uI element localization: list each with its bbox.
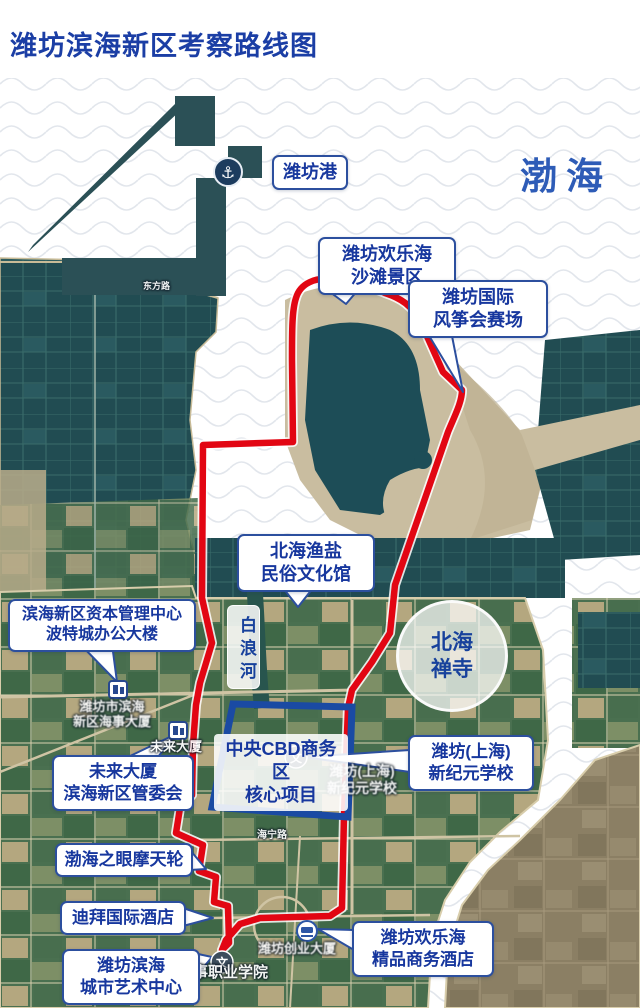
- callout-text: 未来大厦: [60, 761, 186, 783]
- callout-kite: 潍坊国际 风筝会赛场: [408, 280, 548, 338]
- svg-text:⚓: ⚓: [221, 165, 235, 182]
- callout-fishery: 北海渔盐 民俗文化馆: [237, 534, 375, 592]
- anchor-icon: ⚓: [214, 158, 242, 186]
- callout-text: 潍坊滨海: [70, 955, 192, 977]
- callout-cbd: 中央CBD商务区 核心项目: [214, 734, 348, 811]
- callout-text: 波特城办公大楼: [16, 625, 188, 645]
- callout-text: 北海渔盐: [245, 540, 367, 563]
- callout-text: 民俗文化馆: [245, 563, 367, 586]
- map-building-label: 潍坊市滨海 新区海事大厦: [58, 699, 166, 730]
- callout-text: 新纪元学校: [416, 763, 526, 785]
- callout-text: 潍坊国际: [416, 286, 540, 309]
- sea-name-label: 渤海: [520, 146, 612, 200]
- callout-text: 滨海新区管委会: [60, 783, 186, 805]
- callout-capital: 滨海新区资本管理中心 波特城办公大楼: [8, 599, 196, 652]
- callout-text: 潍坊欢乐海: [360, 927, 486, 949]
- building-icon: [169, 722, 187, 739]
- map-road-label: 东方路: [143, 281, 170, 292]
- callout-text: 禅寺: [399, 656, 505, 683]
- callout-text: 潍坊(上海): [416, 741, 526, 763]
- map-building-label: 潍坊创业大厦: [258, 941, 336, 956]
- callout-text: 潍坊欢乐海: [326, 243, 448, 266]
- route-map-page: ⚓ 文 文: [0, 0, 640, 1008]
- temple-circle-label: 北海 禅寺: [396, 600, 508, 712]
- callout-text: 风筝会赛场: [416, 309, 540, 332]
- callout-text: 核心项目: [220, 784, 342, 807]
- map-label-line: 新区海事大厦: [58, 714, 166, 729]
- callout-text: 城市艺术中心: [70, 977, 192, 999]
- callout-dubai: 迪拜国际酒店: [60, 901, 186, 935]
- callout-future: 未来大厦 滨海新区管委会: [52, 755, 194, 811]
- hotel-icon: [297, 921, 317, 941]
- callout-port: 潍坊港: [272, 155, 348, 190]
- callout-text: 潍坊港: [280, 161, 340, 184]
- river-label: 白浪河: [227, 605, 260, 689]
- callout-artcenter: 潍坊滨海 城市艺术中心: [62, 949, 200, 1005]
- callout-text: 迪拜国际酒店: [68, 907, 178, 929]
- callout-text: 滨海新区资本管理中心: [16, 605, 188, 625]
- callout-ferris: 渤海之眼摩天轮: [55, 843, 193, 877]
- map-label-line: 潍坊市滨海: [58, 699, 166, 714]
- map-road-label: 海宁路: [257, 830, 287, 842]
- page-title: 潍坊滨海新区考察路线图: [10, 24, 318, 63]
- callout-text: 渤海之眼摩天轮: [63, 849, 185, 871]
- callout-text: 中央CBD商务区: [220, 738, 342, 784]
- building-icon: [109, 681, 127, 698]
- callout-text: 精品商务酒店: [360, 949, 486, 971]
- callout-hotel: 潍坊欢乐海 精品商务酒店: [352, 921, 494, 977]
- map-building-label: 未来大厦: [150, 739, 202, 754]
- callout-text: 北海: [399, 629, 505, 656]
- callout-school: 潍坊(上海) 新纪元学校: [408, 735, 534, 791]
